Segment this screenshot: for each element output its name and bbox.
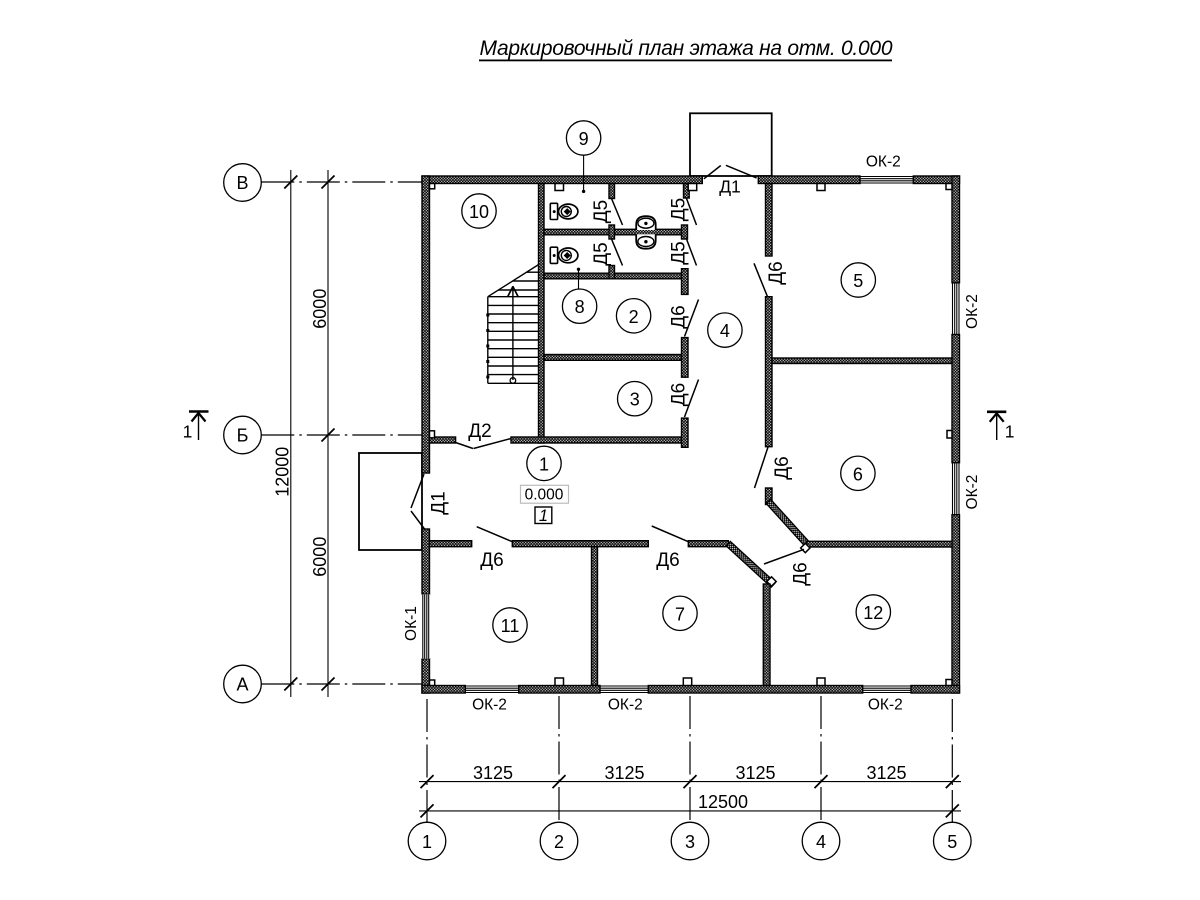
svg-text:11: 11 xyxy=(501,616,520,636)
svg-text:Д6: Д6 xyxy=(766,261,787,284)
svg-text:Д1: Д1 xyxy=(719,177,741,197)
svg-text:В: В xyxy=(236,173,248,193)
svg-text:2: 2 xyxy=(629,307,639,327)
svg-text:ОК-2: ОК-2 xyxy=(472,696,507,713)
svg-text:ОК-2: ОК-2 xyxy=(964,294,981,329)
svg-text:Д6: Д6 xyxy=(656,550,679,571)
svg-text:0.000: 0.000 xyxy=(525,487,564,504)
svg-text:3125: 3125 xyxy=(604,763,644,783)
svg-text:3125: 3125 xyxy=(473,763,513,783)
svg-text:1: 1 xyxy=(183,422,193,442)
svg-text:12: 12 xyxy=(863,603,883,623)
svg-text:8: 8 xyxy=(575,297,585,317)
svg-text:6000: 6000 xyxy=(310,289,330,329)
svg-text:ОК-2: ОК-2 xyxy=(866,154,901,171)
svg-text:Д5: Д5 xyxy=(591,242,612,265)
svg-text:5: 5 xyxy=(853,271,863,291)
svg-text:Д6: Д6 xyxy=(791,562,812,585)
svg-text:12000: 12000 xyxy=(273,447,293,497)
svg-text:1: 1 xyxy=(539,507,548,525)
svg-text:Д5: Д5 xyxy=(591,200,612,223)
svg-text:Д5: Д5 xyxy=(669,241,690,264)
svg-text:ОК-1: ОК-1 xyxy=(403,606,420,641)
svg-text:1: 1 xyxy=(1005,421,1015,441)
svg-text:3: 3 xyxy=(685,832,695,852)
svg-text:ОК-2: ОК-2 xyxy=(868,696,903,713)
svg-text:4: 4 xyxy=(816,832,826,852)
svg-text:Д5: Д5 xyxy=(669,198,690,221)
svg-text:ОК-2: ОК-2 xyxy=(964,475,981,510)
svg-text:Д2: Д2 xyxy=(468,421,491,442)
svg-text:12500: 12500 xyxy=(698,792,748,812)
svg-text:3125: 3125 xyxy=(735,763,775,783)
svg-text:Д6: Д6 xyxy=(669,305,690,328)
svg-text:ОК-2: ОК-2 xyxy=(608,696,643,713)
svg-text:6: 6 xyxy=(853,464,863,484)
svg-text:Д1: Д1 xyxy=(429,491,450,514)
svg-text:4: 4 xyxy=(720,321,730,341)
svg-text:7: 7 xyxy=(675,604,685,624)
svg-text:Д6: Д6 xyxy=(480,550,503,571)
svg-text:А: А xyxy=(236,675,248,695)
svg-text:Маркировочный план этажа на от: Маркировочный план этажа на отм. 0.000 xyxy=(480,37,893,60)
svg-text:5: 5 xyxy=(947,832,957,852)
svg-text:9: 9 xyxy=(579,129,589,149)
svg-text:Д6: Д6 xyxy=(772,456,793,479)
svg-text:Б: Б xyxy=(237,426,249,446)
svg-text:1: 1 xyxy=(539,454,549,474)
svg-text:10: 10 xyxy=(469,202,489,222)
svg-text:1: 1 xyxy=(422,832,432,852)
svg-text:3125: 3125 xyxy=(866,763,906,783)
svg-text:Д6: Д6 xyxy=(669,383,690,406)
svg-text:2: 2 xyxy=(554,832,564,852)
svg-text:3: 3 xyxy=(630,390,640,410)
svg-text:6000: 6000 xyxy=(310,537,330,577)
